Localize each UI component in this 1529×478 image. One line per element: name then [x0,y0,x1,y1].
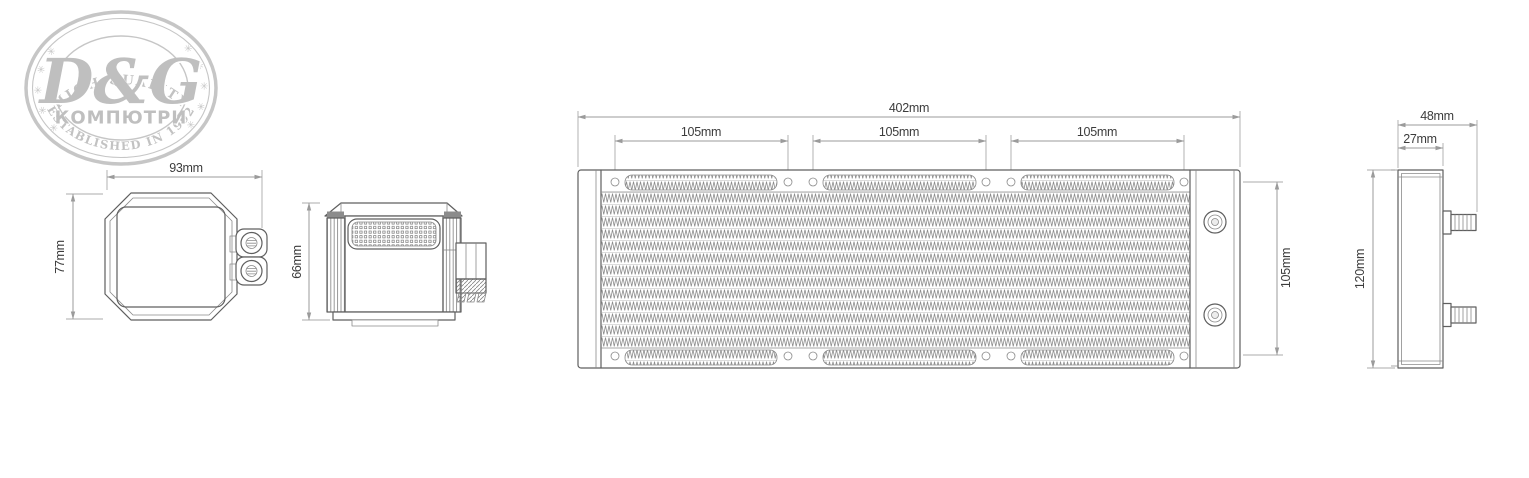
dim-label-fan-spacing-2: 105mm [879,125,919,139]
dim-pump-height: 77mm [53,194,103,319]
dim-radiator-side-height: 120mm [1353,170,1395,368]
dim-fan-spacing: 105mm 105mm 105mm [615,125,1184,176]
pump-block-body [105,193,237,320]
barb-fitting-bottom [1443,304,1476,327]
pump-front-view: 93mm 77mm [53,161,267,320]
barb-fitting-top [1443,211,1476,234]
radiator-side-view: 48mm 27mm 120mm [1353,109,1477,368]
technical-drawing-canvas: HIGH QUALITY ESTABLISHED IN 1992 ✳ ✳ ✳ ✳… [0,0,1529,478]
dim-label-fan-spacing-3: 105mm [1077,125,1117,139]
brand-stamp-logo: HIGH QUALITY ESTABLISHED IN 1992 ✳ ✳ ✳ ✳… [26,12,216,164]
radiator-body [578,170,1240,368]
logo-subtitle-text: КОМПЮТРИ [55,108,188,129]
dim-pump-side-height: 66mm [290,203,330,320]
dim-label-fan-spacing-1: 105mm [681,125,721,139]
pump-side-body [325,203,462,326]
radiator-fin-core [601,192,1190,348]
radiator-bottom-mounting-strip [611,350,1188,365]
radiator-top-mounting-strip [611,175,1188,190]
dim-label-pump-width: 93mm [169,161,203,175]
pump-side-view: 66mm [290,203,486,326]
radiator-top-view: 402mm 105mm 105mm 105mm 105mm [578,101,1293,368]
radiator-side-body [1391,170,1443,368]
dim-label-depth-total: 48mm [1420,109,1454,123]
dim-radiator-width: 105mm [1243,182,1293,355]
dim-label-radiator-width: 105mm [1279,248,1293,288]
dim-label-side-height: 120mm [1353,249,1367,289]
drawing-svg: HIGH QUALITY ESTABLISHED IN 1992 ✳ ✳ ✳ ✳… [0,0,1529,478]
dim-label-depth-core: 27mm [1403,132,1437,146]
dim-label-radiator-length: 402mm [889,101,929,115]
dim-label-pump-side-height: 66mm [290,245,304,279]
dim-radiator-depth-core: 27mm [1398,132,1443,166]
dim-label-pump-height: 77mm [53,240,67,274]
